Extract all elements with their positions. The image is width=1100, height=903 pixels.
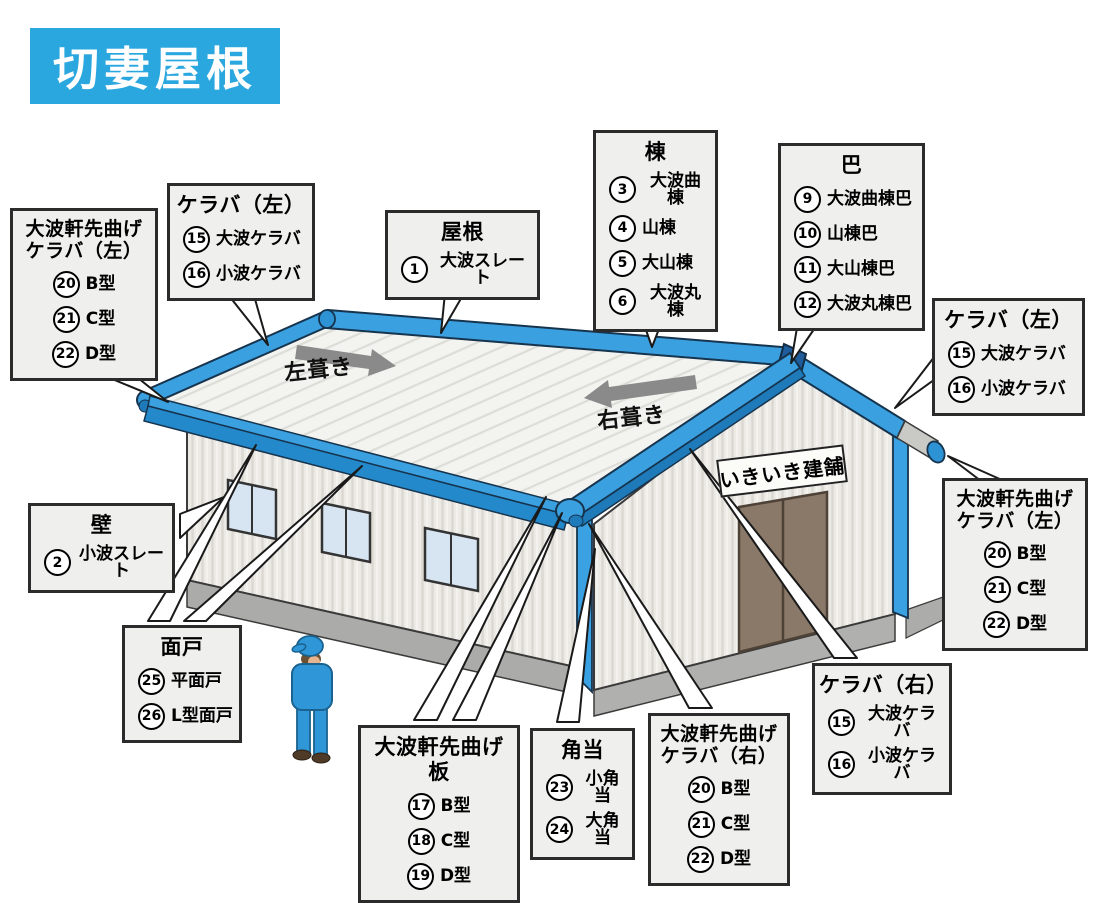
callout-item: 18C型 <box>365 828 513 855</box>
callout-item: 22D型 <box>17 341 151 368</box>
corner-trim-back <box>893 426 908 618</box>
item-label: D型 <box>720 851 751 868</box>
item-number-badge: 23 <box>546 774 573 801</box>
callout-item: 20B型 <box>17 271 151 298</box>
callout-nokisaki-keraba-right: 大波軒先曲げ ケラバ（右） 20B型 21C型 22D型 <box>648 713 790 886</box>
gable-roof-diagram: 切妻屋根 左葺き 右葺き いきいき建舗 大波軒先曲げ ケラバ（左） 20B型 2… <box>0 0 1100 900</box>
item-number-badge: 15 <box>183 226 210 253</box>
item-number-badge: 9 <box>794 186 821 213</box>
callout-tomoe: 巴 9大波曲棟巴 10山棟巴 11大山棟巴 12大波丸棟巴 <box>778 143 925 331</box>
callout-title: 大波軒先曲げ ケラバ（右） <box>655 723 783 768</box>
callout-item: 15大波ケラバ <box>939 341 1078 368</box>
item-number-badge: 26 <box>138 703 165 730</box>
eave-corner-cap-front-shade <box>569 515 583 527</box>
callout-item: 23小角当 <box>537 771 628 805</box>
item-label: 平面戸 <box>171 673 222 690</box>
item-number-badge: 15 <box>828 709 855 736</box>
item-number-badge: 25 <box>138 668 165 695</box>
callout-title: 大波軒先曲げ ケラバ（左） <box>17 218 151 263</box>
callout-item: 5大山棟 <box>600 250 711 277</box>
callout-mune-ridge: 棟 3大波曲棟 4山棟 5大山棟 6大波丸棟 <box>593 130 718 332</box>
callout-title: ケラバ（右） <box>819 673 945 698</box>
callout-keraba-left-right-side: ケラバ（左） 15大波ケラバ 16小波ケラバ <box>932 298 1085 416</box>
callout-title: ケラバ（左） <box>939 308 1078 333</box>
item-label: C型 <box>441 833 470 850</box>
callout-item: 26L型面戸 <box>129 703 235 730</box>
item-number-badge: 16 <box>828 751 855 778</box>
callout-nokisaki-keraba-left: 大波軒先曲げ ケラバ（左） 20B型 21C型 22D型 <box>10 208 158 381</box>
item-label: C型 <box>721 816 750 833</box>
item-number-badge: 15 <box>948 341 975 368</box>
callout-item: 16小波ケラバ <box>939 376 1078 403</box>
item-label: 小波ケラバ <box>861 748 943 782</box>
item-label: D型 <box>1016 616 1047 633</box>
item-number-badge: 5 <box>609 250 636 277</box>
item-number-badge: 21 <box>53 306 80 333</box>
item-number-badge: 3 <box>609 176 636 203</box>
callout-item: 16小波ケラバ <box>819 748 945 782</box>
worker-shoe <box>312 753 330 763</box>
callout-item: 2小波スレート <box>35 546 168 580</box>
ridge-end-cap-left <box>319 310 335 328</box>
item-number-badge: 6 <box>609 288 636 315</box>
callout-item: 11大山棟巴 <box>785 256 918 283</box>
item-label: 小角当 <box>579 771 626 805</box>
callout-item: 21C型 <box>17 306 151 333</box>
item-number-badge: 12 <box>794 291 821 318</box>
item-label: 大波スレート <box>434 253 531 287</box>
callout-title: 壁 <box>35 513 168 538</box>
item-number-badge: 22 <box>983 611 1010 638</box>
item-number-badge: 18 <box>408 828 435 855</box>
callout-item: 1大波スレート <box>392 253 533 287</box>
callout-item: 15大波ケラバ <box>819 706 945 740</box>
item-number-badge: 21 <box>688 811 715 838</box>
callout-kabe-wall: 壁 2小波スレート <box>28 503 175 593</box>
item-label: C型 <box>1017 581 1046 598</box>
worker-figure <box>291 636 332 763</box>
item-number-badge: 4 <box>609 215 636 242</box>
item-label: 大山棟巴 <box>827 261 895 278</box>
worker-shoe <box>293 750 311 760</box>
callout-title: 大波軒先曲げ ケラバ（左） <box>949 488 1081 533</box>
item-number-badge: 17 <box>408 793 435 820</box>
item-number-badge: 11 <box>794 256 821 283</box>
item-number-badge: 1 <box>401 256 428 283</box>
callout-keraba-right: ケラバ（右） 15大波ケラバ 16小波ケラバ <box>812 663 952 795</box>
item-label: 山棟巴 <box>827 226 878 243</box>
item-label: 大波ケラバ <box>981 346 1066 363</box>
item-label: L型面戸 <box>171 708 233 725</box>
item-number-badge: 19 <box>407 863 434 890</box>
callout-title: ケラバ（左） <box>174 193 308 218</box>
callout-item: 25平面戸 <box>129 668 235 695</box>
item-label: 山棟 <box>642 220 676 237</box>
callout-nokisaki-keraba-left-right-side: 大波軒先曲げ ケラバ（左） 20B型 21C型 22D型 <box>942 478 1088 651</box>
callout-item: 4山棟 <box>600 215 711 242</box>
callout-item: 22D型 <box>655 846 783 873</box>
item-label: 大波曲棟巴 <box>827 191 912 208</box>
callout-title: 屋根 <box>392 220 533 245</box>
callout-title: 大波軒先曲げ板 <box>365 735 513 785</box>
window-3 <box>425 528 478 591</box>
callout-item: 12大波丸棟巴 <box>785 291 918 318</box>
item-label: 大波ケラバ <box>216 231 301 248</box>
callout-item: 24大角当 <box>537 813 628 847</box>
item-label: B型 <box>1017 546 1047 563</box>
item-label: 大山棟 <box>642 255 693 272</box>
callout-item: 21C型 <box>655 811 783 838</box>
callout-item: 10山棟巴 <box>785 221 918 248</box>
item-number-badge: 24 <box>546 816 573 843</box>
item-number-badge: 20 <box>984 541 1011 568</box>
callout-item: 16小波ケラバ <box>174 261 308 288</box>
item-label: 大波ケラバ <box>861 706 943 740</box>
item-label: B型 <box>721 781 751 798</box>
callout-item: 22D型 <box>949 611 1081 638</box>
callout-nokisaki-mage-ita: 大波軒先曲げ板 17B型 18C型 19D型 <box>358 725 520 903</box>
item-label: 小波ケラバ <box>216 266 301 283</box>
callout-item: 19D型 <box>365 863 513 890</box>
item-label: 小波スレート <box>77 546 166 580</box>
callout-item: 20B型 <box>949 541 1081 568</box>
callout-title: 面戸 <box>129 635 235 660</box>
worker-jacket <box>292 664 332 710</box>
item-number-badge: 20 <box>53 271 80 298</box>
callout-yane-roof: 屋根 1大波スレート <box>385 210 540 300</box>
callout-title: 棟 <box>600 140 711 165</box>
item-label: C型 <box>86 311 115 328</box>
item-number-badge: 22 <box>687 846 714 873</box>
callout-item: 9大波曲棟巴 <box>785 186 918 213</box>
item-label: B型 <box>86 276 116 293</box>
callout-item: 15大波ケラバ <box>174 226 308 253</box>
item-number-badge: 10 <box>794 221 821 248</box>
foundation-right-wedge <box>906 597 947 638</box>
item-label: 小波ケラバ <box>981 381 1066 398</box>
item-number-badge: 20 <box>688 776 715 803</box>
item-number-badge: 21 <box>984 576 1011 603</box>
callout-item: 17B型 <box>365 793 513 820</box>
callout-item: 20B型 <box>655 776 783 803</box>
callout-item: 6大波丸棟 <box>600 285 711 319</box>
item-number-badge: 22 <box>52 341 79 368</box>
item-number-badge: 16 <box>948 376 975 403</box>
callout-title: 角当 <box>537 738 628 763</box>
item-label: 大波丸棟巴 <box>827 296 912 313</box>
page-title: 切妻屋根 <box>30 28 280 104</box>
callout-item: 21C型 <box>949 576 1081 603</box>
callout-title: 巴 <box>785 153 918 178</box>
callout-mendo: 面戸 25平面戸 26L型面戸 <box>122 625 242 743</box>
item-number-badge: 2 <box>44 549 71 576</box>
item-number-badge: 16 <box>183 261 210 288</box>
item-label: B型 <box>441 798 471 815</box>
item-label: D型 <box>440 868 471 885</box>
item-label: 大角当 <box>579 813 626 847</box>
item-label: D型 <box>85 346 116 363</box>
callout-keraba-left-top: ケラバ（左） 15大波ケラバ 16小波ケラバ <box>167 183 315 301</box>
callout-kadoate: 角当 23小角当 24大角当 <box>530 728 635 860</box>
item-label: 大波曲棟 <box>642 173 709 207</box>
item-label: 大波丸棟 <box>642 285 709 319</box>
callout-item: 3大波曲棟 <box>600 173 711 207</box>
window-2 <box>322 503 370 562</box>
